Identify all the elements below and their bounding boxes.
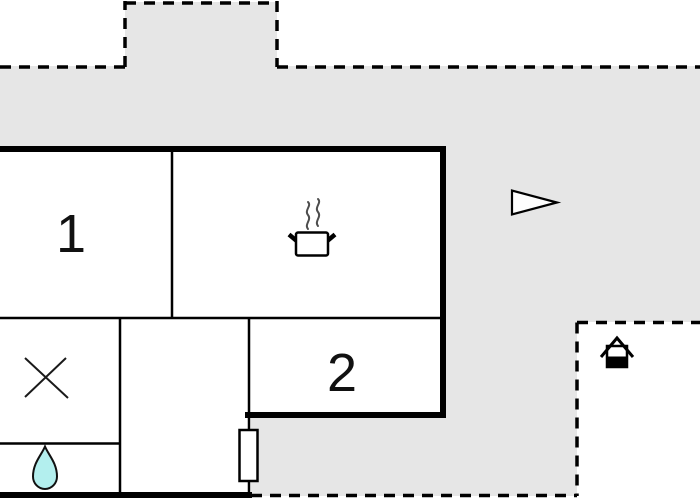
room-2-label: 2 <box>327 343 357 403</box>
door-symbol <box>240 430 258 481</box>
floor-plan: 1 2 <box>0 0 700 500</box>
room-1-label: 1 <box>56 204 86 264</box>
grill-icon <box>601 338 633 367</box>
